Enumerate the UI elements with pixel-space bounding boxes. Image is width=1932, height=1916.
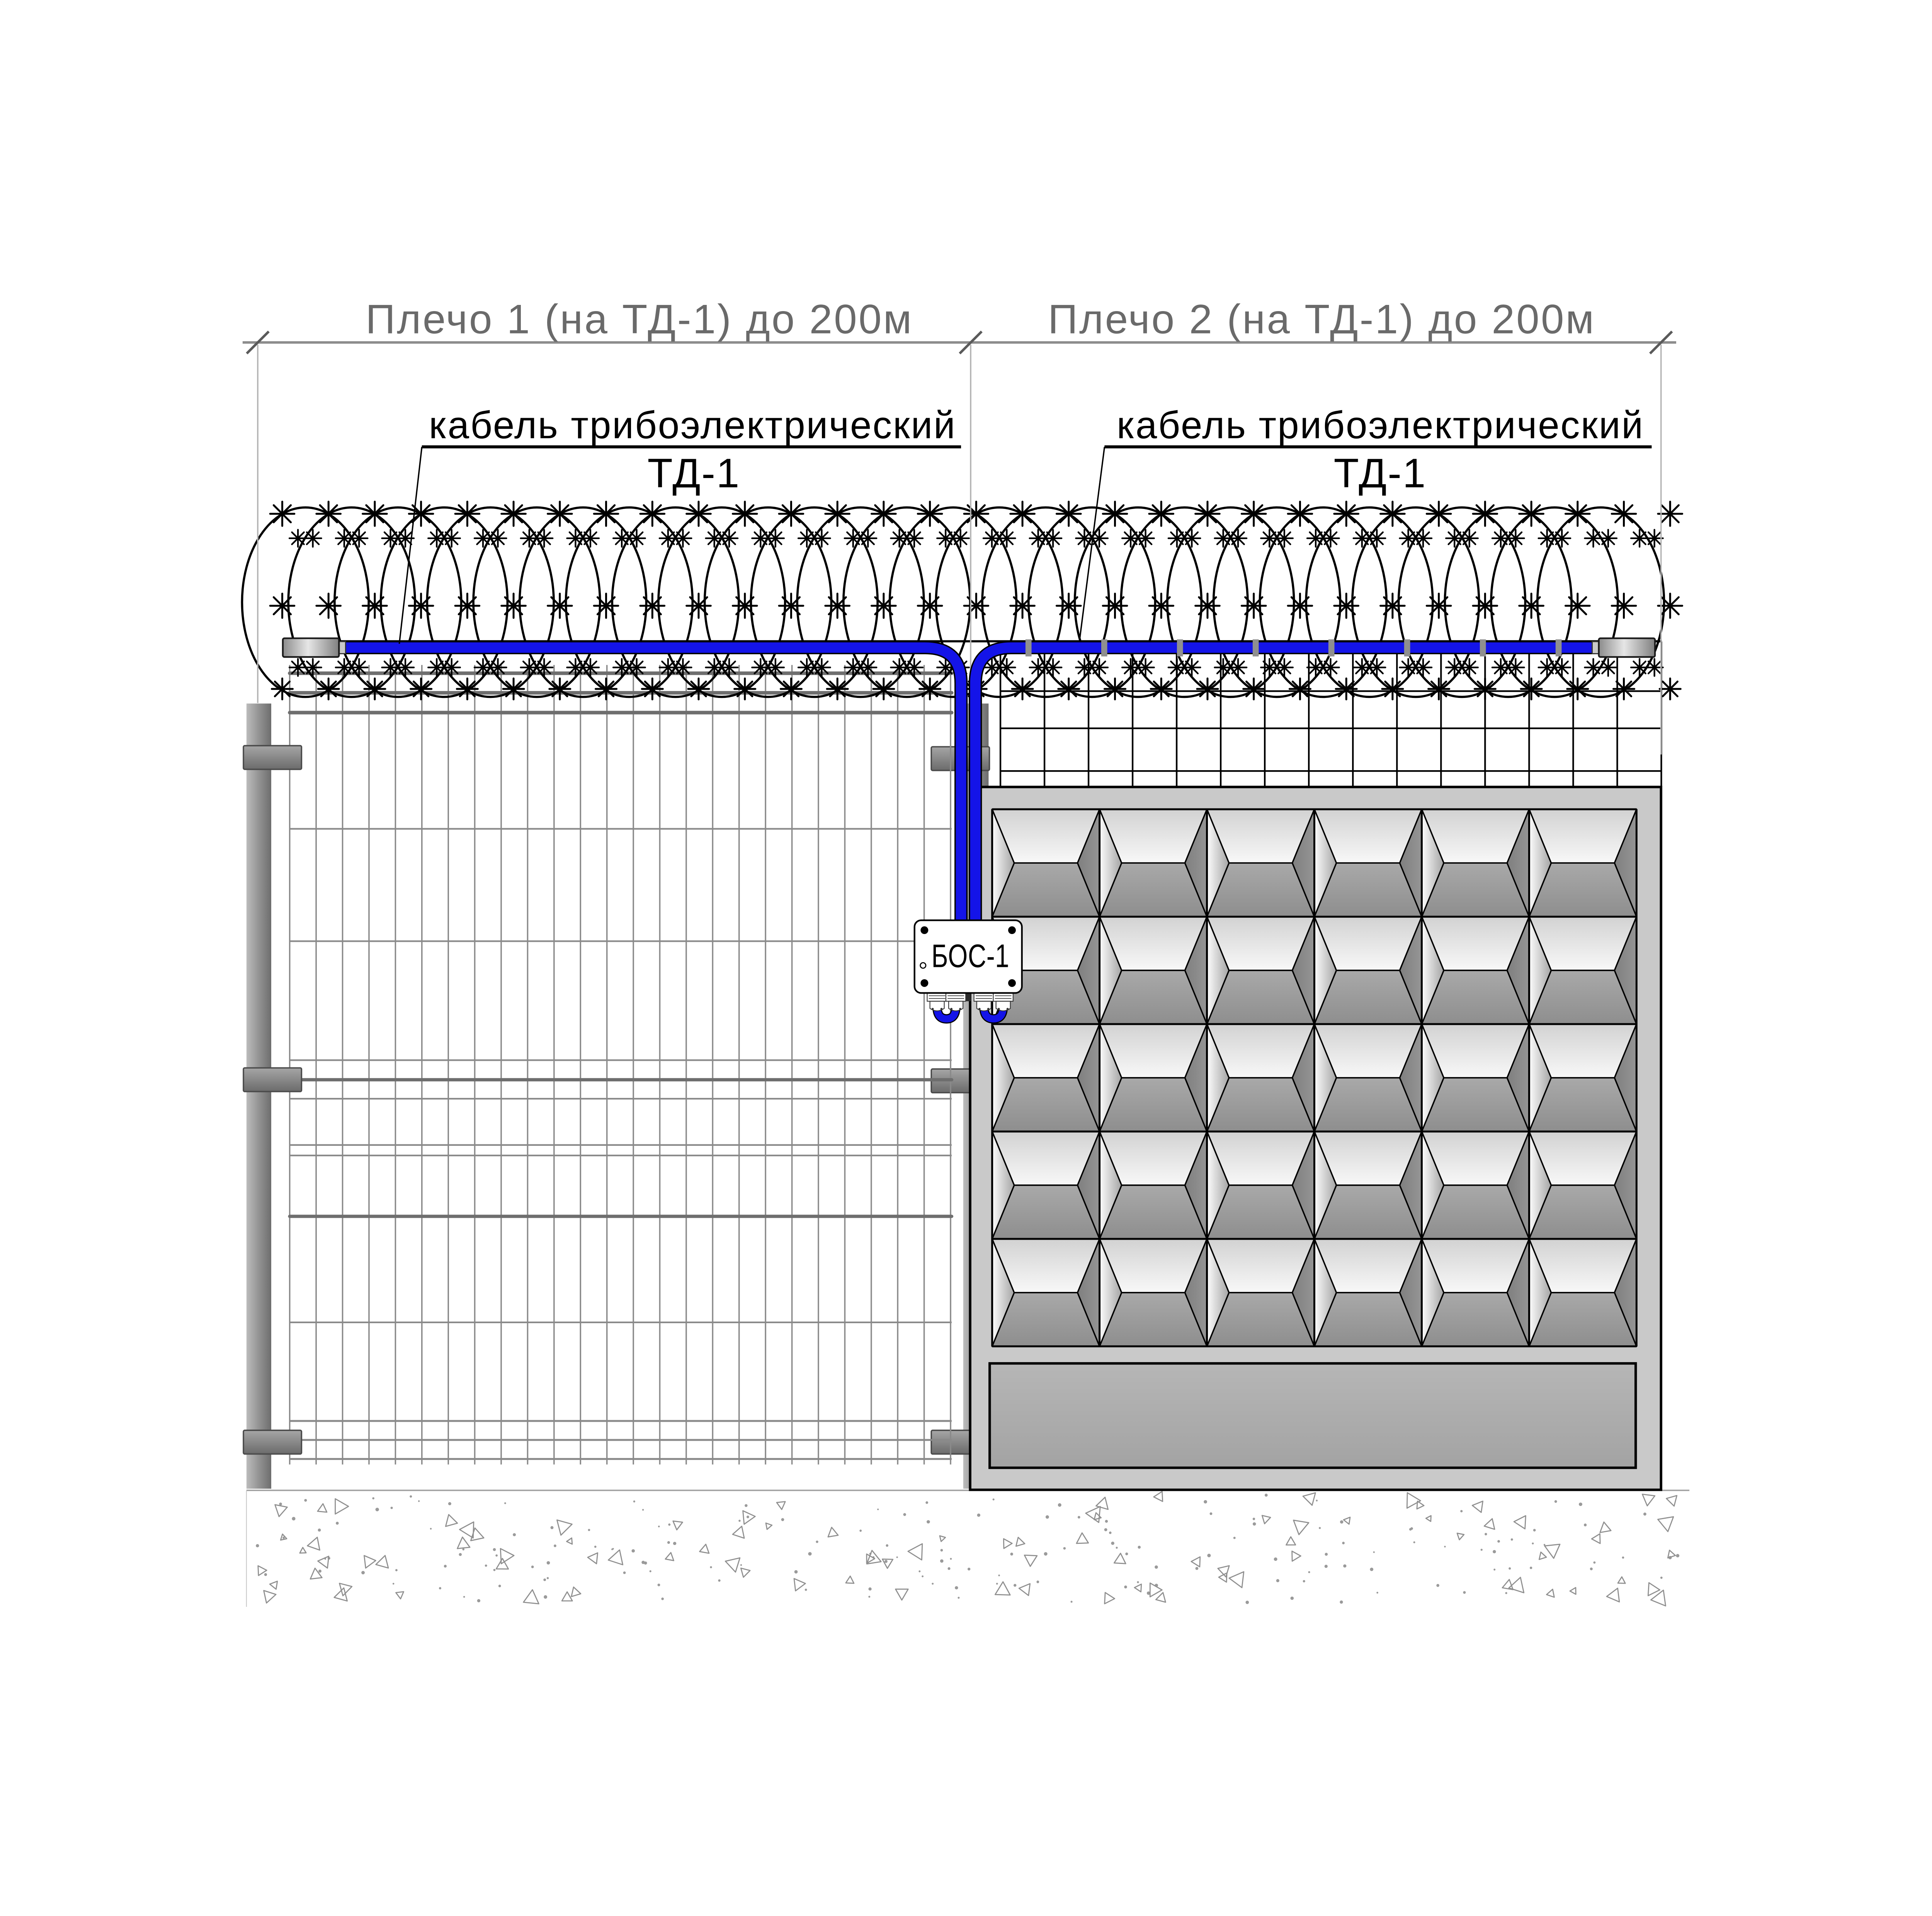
cable-label-right-line2: ТД-1 [1334,450,1427,496]
dimension-label-arm2: Плечо 2 (на ТД-1) до 200м [1048,296,1595,342]
cable-label-left-line1: кабель трибоэлектрический [429,404,956,447]
fence-security-diagram: Плечо 1 (на ТД-1) до 200м Плечо 2 (на ТД… [0,0,1932,1916]
cable-label-left-line2: ТД-1 [648,450,741,496]
dimension-label-arm1: Плечо 1 (на ТД-1) до 200м [366,296,913,342]
panel-layer [970,787,1661,1490]
junction-box-label: БОС-1 [932,938,1010,974]
ground-layer [247,1491,1689,1607]
cable-label-right-line1: кабель трибоэлектрический [1117,404,1644,447]
